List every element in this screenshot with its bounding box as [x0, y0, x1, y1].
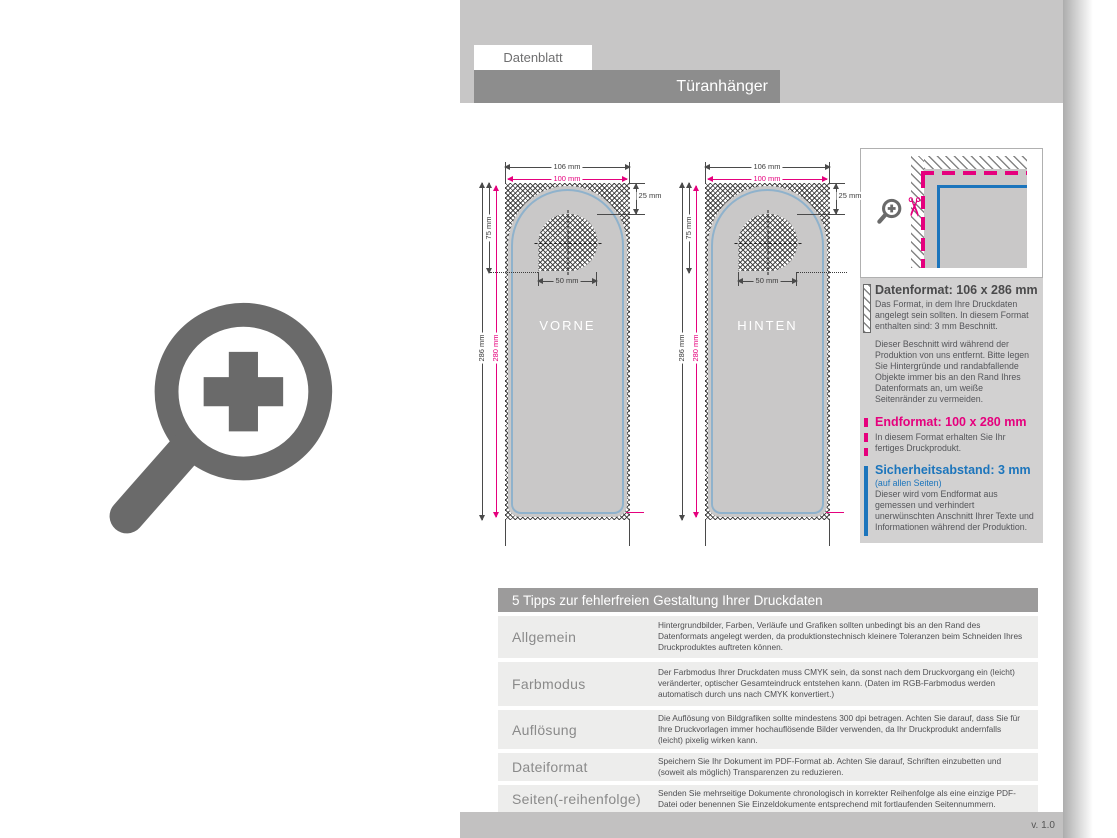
datenformat-title: Datenformat: 106 x 286 mm	[875, 284, 1038, 298]
sicherheitsabstand-subtitle: (auf allen Seiten)	[875, 479, 942, 489]
front-dim-100-label: 100 mm	[551, 175, 582, 183]
scissors-icon: ✂	[901, 196, 927, 218]
crop-mark	[626, 512, 644, 513]
back-dim-280-label: 280 mm	[692, 332, 700, 363]
datenblatt-tab-label: Datenblatt	[503, 50, 562, 65]
page-shadow	[1063, 0, 1093, 838]
tip-label: Seiten(-reihenfolge)	[512, 791, 641, 807]
front-dim-25-label: 25 mm	[637, 192, 664, 200]
front-endformat-shape: VORNE	[508, 186, 627, 517]
front-dim-280-label: 280 mm	[492, 332, 500, 363]
safety-line-v	[937, 185, 940, 268]
datenformat-paragraph-2: Dieser Beschnitt wird während der Produk…	[875, 339, 1035, 405]
back-side-label: HINTEN	[708, 318, 827, 333]
tip-text: Der Farbmodus Ihrer Druckdaten muss CMYK…	[658, 667, 1028, 701]
sicherheitsabstand-bar	[864, 466, 868, 536]
tip-text: Senden Sie mehrseitige Dokumente chronol…	[658, 787, 1028, 809]
datenblatt-tab: Datenblatt	[474, 45, 592, 70]
back-dim-100-label: 100 mm	[751, 175, 782, 183]
back-hole-centerline-v	[768, 210, 769, 275]
sicherheitsabstand-paragraph: Dieser wird vom Endformat aus gemessen u…	[875, 489, 1035, 533]
sicherheitsabstand-title: Sicherheitsabstand: 3 mm	[875, 464, 1031, 478]
front-dim-50-label: 50 mm	[554, 277, 581, 285]
tip-label: Dateiformat	[512, 759, 588, 775]
format-info-panel: Datenformat: 106 x 286 mm Das Format, in…	[860, 278, 1043, 543]
tip-row-farbmodus: Farbmodus Der Farbmodus Ihrer Druckdaten…	[498, 662, 1038, 706]
front-dim-106-label: 106 mm	[551, 163, 582, 171]
endformat-paragraph: In diesem Format erhalten Sie Ihr fertig…	[875, 432, 1035, 454]
front-dim-75-label: 75 mm	[485, 215, 493, 242]
back-dim-286-label: 286 mm	[678, 332, 686, 363]
front-hole	[538, 214, 597, 271]
tip-row-allgemein: Allgemein Hintergrundbilder, Farben, Ver…	[498, 616, 1038, 658]
page-title-bar: Türanhänger	[474, 70, 780, 103]
datenformat-paragraph-1: Das Format, in dem Ihre Druckdaten angel…	[875, 299, 1035, 332]
front-hole-centerline-v	[568, 210, 569, 275]
endformat-title: Endformat: 100 x 280 mm	[875, 416, 1026, 430]
tip-text: Hintergrundbilder, Farben, Verläufe und …	[658, 620, 1028, 654]
ext-line-dotted	[797, 272, 847, 273]
tip-row-seitenreihenfolge: Seiten(-reihenfolge) Senden Sie mehrseit…	[498, 785, 1038, 812]
page-title: Türanhänger	[676, 78, 768, 96]
tips-header: 5 Tipps zur fehlerfreien Gestaltung Ihre…	[498, 588, 1038, 612]
back-dim-75-label: 75 mm	[685, 215, 693, 242]
endformat-dashed-line-h	[921, 171, 1027, 175]
back-dim-106-label: 106 mm	[751, 163, 782, 171]
tip-label: Auflösung	[512, 722, 577, 738]
crop-mark	[505, 520, 506, 546]
bleed-hatch-band-top	[924, 156, 1027, 169]
back-hole	[738, 214, 797, 271]
back-dim-25-label: 25 mm	[837, 192, 864, 200]
corner-detail-box: ✂	[860, 148, 1043, 278]
endformat-dash-bar	[864, 418, 868, 456]
back-endformat-shape: HINTEN	[708, 186, 827, 517]
tips-title: 5 Tipps zur fehlerfreien Gestaltung Ihre…	[512, 593, 823, 608]
back-dim-50-label: 50 mm	[754, 277, 781, 285]
footer-bar: v. 1.0	[460, 812, 1063, 838]
tip-text: Die Auflösung von Bildgrafiken sollte mi…	[658, 713, 1028, 747]
datenformat-hatch-bar	[863, 284, 871, 333]
tip-text: Speichern Sie Ihr Dokument im PDF-Format…	[658, 756, 1028, 778]
version-label: v. 1.0	[1031, 820, 1055, 831]
crop-mark	[705, 520, 706, 546]
tip-label: Allgemein	[512, 629, 576, 645]
crop-mark	[826, 512, 844, 513]
tip-label: Farbmodus	[512, 676, 586, 692]
tip-row-aufloesung: Auflösung Die Auflösung von Bildgrafiken…	[498, 710, 1038, 749]
datasheet-document: Datenblatt Türanhänger VORNE 106 mm 100 …	[460, 0, 1063, 838]
endformat-dashed-line-v	[921, 175, 925, 268]
ext-line-dotted	[490, 272, 538, 273]
crop-mark	[829, 520, 830, 546]
front-dim-286-label: 286 mm	[478, 332, 486, 363]
tip-row-dateiformat: Dateiformat Speichern Sie Ihr Dokument i…	[498, 753, 1038, 781]
page: Datenblatt Türanhänger VORNE 106 mm 100 …	[0, 0, 1117, 838]
crop-mark	[629, 520, 630, 546]
zoom-plus-logo-icon	[95, 278, 360, 553]
safety-line-h	[937, 185, 1027, 188]
front-side-label: VORNE	[508, 318, 627, 333]
corner-zoom-illustration: ✂	[911, 156, 1027, 268]
